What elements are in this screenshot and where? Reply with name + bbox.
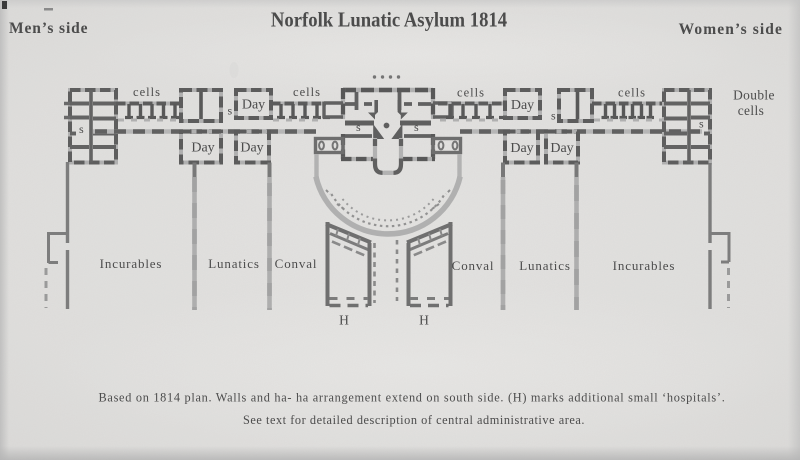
svg-text:cells: cells [618,86,646,100]
svg-text:Day: Day [511,98,534,113]
svg-text:H: H [419,313,429,328]
svg-text:cells: cells [293,85,321,99]
svg-text:Day: Day [242,98,265,113]
svg-text:s: s [228,104,233,118]
svg-text:Day: Day [510,141,533,156]
svg-text:See text for detailed descript: See text for detailed description of cen… [243,413,585,427]
svg-text:Day: Day [550,141,573,156]
svg-text:cells: cells [457,86,485,100]
svg-text:Day: Day [240,141,263,156]
svg-text:s: s [551,109,556,123]
svg-text:cells: cells [133,85,161,99]
svg-text:s: s [356,120,361,134]
svg-text:Men’s side: Men’s side [9,20,88,37]
svg-text:Norfolk Lunatic Asylum 1814: Norfolk Lunatic Asylum 1814 [271,8,507,31]
svg-text:Day: Day [191,141,214,156]
svg-text:s: s [79,122,84,136]
svg-text:H: H [339,313,349,328]
svg-text:s: s [699,117,704,131]
svg-text:Based on 1814 plan. Walls and: Based on 1814 plan. Walls and ha- ha arr… [99,391,726,405]
svg-text:Incurables: Incurables [613,258,676,273]
svg-text:Conval: Conval [275,256,318,271]
svg-text:Conval: Conval [452,258,495,273]
svg-text:s: s [414,120,419,134]
svg-text:cells: cells [738,103,765,118]
svg-text:Lunatics: Lunatics [519,258,571,273]
svg-text:Double: Double [733,88,775,103]
svg-text:Incurables: Incurables [100,256,163,271]
svg-text:Women’s side: Women’s side [679,21,783,38]
svg-text:Lunatics: Lunatics [208,256,260,271]
